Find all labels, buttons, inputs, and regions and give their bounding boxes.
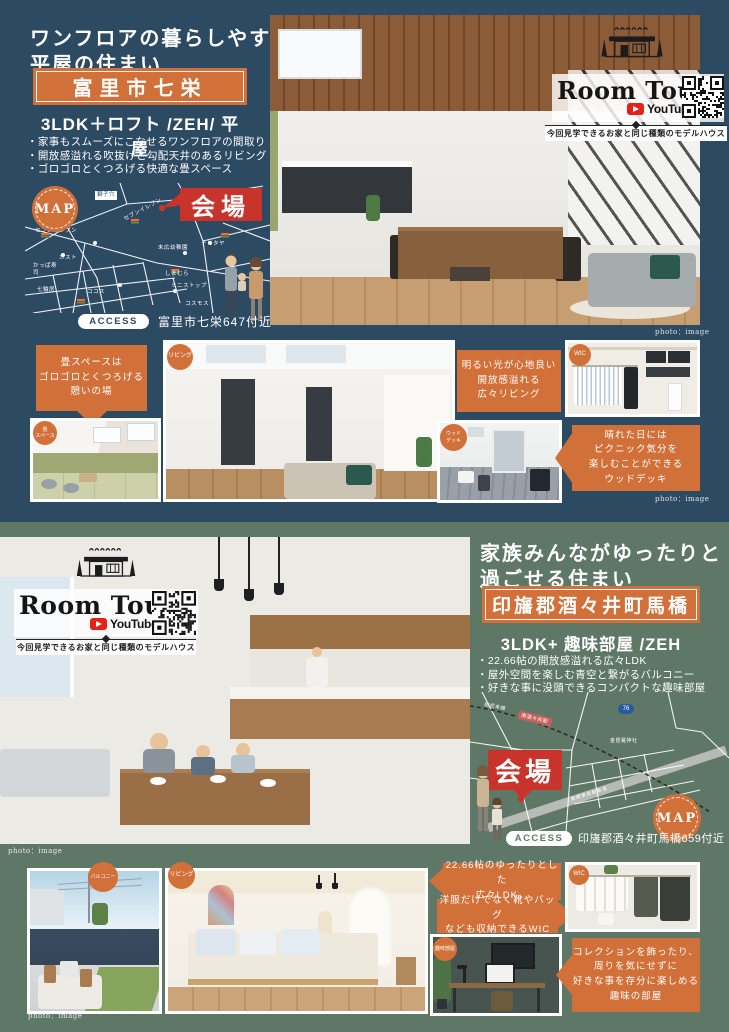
photo-decor — [260, 779, 276, 787]
property2-location: 印旛郡酒々井町馬橋 — [485, 589, 697, 620]
photo-decor — [318, 875, 320, 883]
photo-decor — [286, 345, 346, 363]
photo-decor — [450, 267, 490, 281]
photo-decor — [230, 699, 470, 739]
photo-decor — [437, 999, 447, 1009]
bullet: ・屋外空間を楽しむ青空と繋がるバルコニー — [477, 669, 729, 683]
photo-credit: photo：image — [655, 327, 709, 337]
photo-decor — [491, 991, 513, 1011]
photo-decor — [463, 968, 466, 983]
property2-title-line1: 家族みんながゆったりと — [480, 543, 722, 565]
photo-credit: photo：image — [28, 1011, 82, 1021]
label-wic: WIC — [569, 344, 591, 366]
person-figure — [191, 757, 215, 775]
photo-decor — [366, 195, 380, 221]
access-badge: ACCESS — [506, 831, 572, 846]
property1-location-box: 富里市七栄 — [33, 68, 247, 105]
youtube-label: YouTube — [110, 617, 157, 631]
photo-credit: photo：image — [655, 494, 709, 504]
photo-decor — [206, 345, 266, 363]
house-icon — [587, 24, 677, 68]
map-label: ミニストップ — [171, 283, 207, 290]
qr-code[interactable] — [152, 591, 196, 635]
photo-decor — [396, 957, 416, 985]
photo-decor — [79, 473, 97, 482]
photo-decor — [196, 929, 236, 955]
photo-decor — [60, 961, 78, 977]
photo-decor — [188, 979, 378, 985]
photo-decor — [492, 429, 526, 473]
photo-decor — [346, 465, 372, 485]
map-label: ナリタヤ — [201, 241, 225, 248]
property2-spec: 3LDK+ 趣味部屋 /ZEH — [482, 631, 700, 655]
photo-decor — [453, 988, 456, 1012]
access-address: 富里市七栄647付近 — [158, 313, 272, 330]
youtube-play-icon — [90, 618, 107, 630]
photo-decor — [306, 387, 332, 461]
label-hobby-room: 趣味部屋 — [433, 937, 457, 961]
photo-decor — [598, 913, 614, 925]
person-figure — [312, 647, 322, 657]
photo-decor — [646, 351, 666, 363]
person-figure — [306, 657, 328, 687]
venue-dot — [159, 205, 165, 211]
photo-decor — [624, 367, 638, 409]
photo-living1 — [163, 340, 455, 502]
photo-credit: photo：image — [8, 846, 62, 856]
pendant-light — [214, 579, 224, 591]
photo-decor — [210, 775, 226, 783]
property1-title-line1: ワンフロアの暮らしやすい — [30, 28, 293, 50]
bullet: ・22.66帖の開放感溢れる広々LDK — [477, 655, 729, 669]
label-wood-deck: ウッド デッキ — [440, 424, 467, 451]
room-tour-subtitle: 今回見学できるお家と同じ種類のモデルハウス — [545, 125, 727, 141]
room-tour-subtitle: 今回見学できるお家と同じ種類のモデルハウス — [16, 639, 196, 655]
property2-map: 総武本線 南酒々井駅 金毘羅神社 76 東関東自動車道 会場 MAP — [470, 692, 729, 832]
photo-decor — [127, 423, 155, 441]
map-label: ココス — [87, 289, 105, 296]
map-label: コスモス — [185, 301, 209, 308]
shrine-label: 金毘羅神社 — [610, 738, 638, 744]
photo-decor — [282, 167, 412, 213]
photo-decor — [250, 649, 470, 689]
photo-decor — [41, 479, 57, 489]
callout-wic: 洋服だけでなく靴やバッグ なども収納できるWIC — [437, 899, 558, 933]
photo-decor — [318, 911, 332, 933]
property2-location-box: 印旛郡酒々井町馬橋 — [482, 586, 700, 623]
photo-decor — [44, 965, 56, 983]
photo-decor — [93, 427, 121, 443]
label-balcony: バルコニー — [88, 862, 118, 892]
photo-decor — [646, 367, 690, 377]
photo-decor — [240, 931, 276, 955]
callout-hobby-arrow — [556, 955, 572, 995]
room-tour-block: Room Tour YouTube 今回見学できるお家と同じ種類のモデルハウス — [543, 22, 729, 140]
callout-wood-deck: 晴れた日には ピクニック気分を 楽しむことができる ウッドデッキ — [572, 425, 700, 491]
access-badge: ACCESS — [78, 314, 149, 329]
map-label: しまむら — [165, 271, 189, 278]
photo-decor — [416, 437, 432, 467]
photo-decor — [668, 351, 690, 363]
venue-dot — [518, 796, 524, 802]
photo-decor — [218, 537, 220, 579]
photo-decor — [316, 883, 322, 889]
photo-decor — [92, 903, 108, 925]
map-label: 七輪房 — [37, 287, 55, 294]
photo-decor — [468, 427, 484, 437]
callout-ldk-arrow — [429, 868, 443, 894]
photo-decor — [604, 865, 618, 874]
callout-living: 明るい光が心地良い 開放感溢れる 広々リビング — [457, 350, 561, 412]
bullet: ・家事もスムーズにこなせるワンフロアの間取り — [27, 136, 267, 150]
photo-living2 — [165, 868, 428, 1014]
venue-label: 会場 — [180, 188, 262, 221]
photo-decor — [248, 537, 250, 589]
photo-decor — [660, 877, 690, 921]
map-label: ガスト — [59, 255, 77, 262]
photo-decor — [332, 883, 338, 889]
bullet: ・ゴロゴロとくつろげる快適な畳スペース — [27, 163, 267, 177]
callout-tatami: 畳スペースは ゴロゴロとくつろげる 憩いの場 — [36, 345, 147, 411]
house-icon — [64, 545, 148, 587]
stained-glass-window — [208, 885, 234, 925]
photo-decor — [250, 615, 470, 649]
photo-decor — [530, 469, 550, 491]
youtube-logo[interactable]: YouTube — [90, 617, 157, 631]
flyer-page: { "colors": {"navy":"#2d4a63","green":"#… — [0, 0, 729, 1032]
access-address: 印旛郡酒々井町馬橋659付近 — [578, 830, 724, 846]
photo-decor — [574, 367, 622, 405]
people-illustration — [468, 764, 508, 842]
photo-decor — [30, 889, 64, 925]
property2-bullets: ・22.66帖の開放感溢れる広々LDK ・屋外空間を楽しむ青空と繋がるバルコニー… — [477, 655, 729, 696]
callout-hobby: コレクションを飾ったり、 周りを気にせずに 好きな事を存分に楽しめる 趣味の部屋 — [572, 938, 700, 1012]
youtube-play-icon — [627, 103, 644, 115]
photo-decor — [334, 873, 336, 883]
pendant-light — [274, 583, 284, 595]
map-label: 獅子穴 — [95, 191, 117, 200]
pendant-light — [244, 589, 254, 601]
property1-map: 獅子穴 セブンイレブン セブンイレブン ガスト かっぱ寿司 七輪房 ココス 末広… — [25, 183, 270, 313]
photo-decor — [458, 471, 474, 483]
photo-decor — [63, 483, 79, 493]
photo-decor — [278, 537, 280, 583]
photo-decor — [668, 383, 682, 411]
photo-decor — [80, 969, 92, 987]
label-tatami: 畳 スペース — [33, 421, 57, 445]
photo-decor — [0, 749, 110, 797]
photo-decor — [449, 983, 545, 988]
label-living: リビング — [167, 344, 193, 370]
map-badge: MAP — [32, 186, 78, 232]
property1-location: 富里市七栄 — [36, 71, 244, 102]
label-living: リビング — [168, 862, 195, 889]
property1-bullets: ・家事もスムーズにこなせるワンフロアの間取り ・開放感溢れる吹抜けと勾配天井のあ… — [27, 136, 267, 177]
room-tour-block: Room Tour YouTube 今回見学できるお家と同じ種類のモデルハウス — [2, 543, 212, 655]
photo-decor — [221, 379, 255, 465]
photo-decor — [270, 111, 278, 231]
route-badge: 76 — [618, 704, 634, 714]
map-label: かっぱ寿司 — [33, 263, 57, 276]
photo-decor — [150, 777, 166, 785]
label-wic: WIC — [569, 865, 589, 885]
bullet: ・開放感溢れる吹抜けと勾配天井のあるリビング — [27, 150, 267, 164]
photo-decor — [230, 687, 470, 699]
photo-decor — [634, 877, 658, 917]
photo-decor — [537, 988, 540, 1012]
map-label: 末広幼稚園 — [158, 245, 188, 252]
person-figure — [231, 755, 255, 773]
photo-decor — [280, 929, 320, 955]
monitor — [485, 963, 515, 984]
qr-code[interactable] — [682, 76, 724, 118]
photo-decor — [478, 475, 490, 491]
photo-decor — [433, 957, 451, 1003]
photo-decor — [278, 29, 362, 79]
person-figure — [143, 749, 175, 773]
photo-decor — [650, 255, 680, 279]
callout-wood-deck-arrow — [555, 432, 573, 484]
